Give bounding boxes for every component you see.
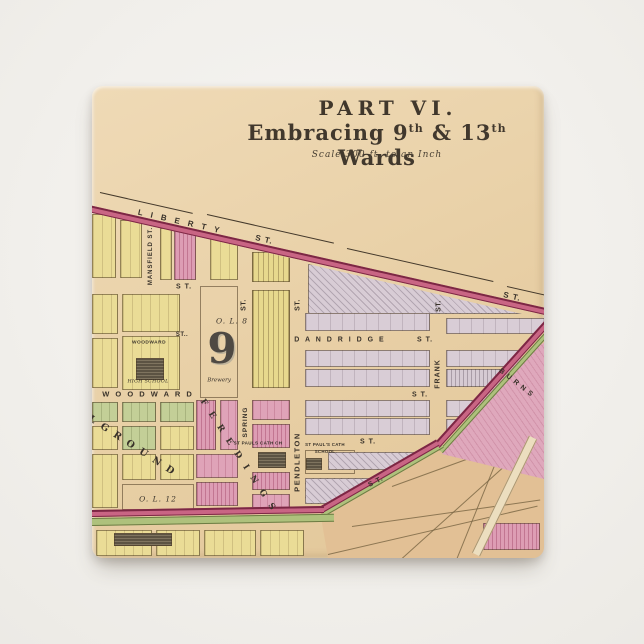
outlot-label-12: O. L. 12 [139,495,177,503]
street-label-dandridge: D A N D R I D G E [294,337,385,344]
place-label-st-pauls-school-1: ST PAUL'S CATH [305,443,345,447]
place-label-fere-dings: F E R E D I N G S [198,398,278,514]
place-label-st-pauls-school-2: SCHOOL [315,450,336,454]
street-label-st-right: S T. [412,392,428,399]
place-label-st-pauls-church: ST PAULS CATH CH [234,442,283,447]
street-label-st-left: S T. [176,284,192,291]
street-label-dandridge-st: S T. [417,337,433,344]
ward-number: 9 [207,328,236,370]
place-label-burns: B U R N S [497,367,534,398]
place-label-woodward-school-2: HIGH SCHOOL [127,381,168,386]
street-label-st-v1: ST. [241,299,248,311]
map-print: PART VI. Embracing 9th & 13th Wards Scal… [92,86,544,558]
street-label-frank: FRANK [435,359,442,389]
place-label-brewery: Brewery [207,378,231,384]
street-label-frank-st-part: ST. [436,300,443,312]
street-label-st-v2: ST. [295,299,302,311]
street-label-mansfield: MANSFIELD ST. [148,227,154,285]
street-label-st-diagonal: S T. [367,475,384,489]
street-label-pendleton: PENDLETON [293,432,301,492]
place-label-woodward-school-1: WOODWARD [132,342,166,347]
street-label-woodward: W O O D W A R D [102,390,194,398]
street-label-st-mid: S T. [360,439,376,446]
map-labels-layer: L I B E R T YS T.S T.MANSFIELD ST.S T.ST… [92,86,544,558]
street-label-spring: SPRING [243,407,250,438]
street-label-st-small: ST.. [176,332,188,338]
street-label-liberty-st: S T. [254,234,273,246]
place-label-burial-ground: L G R O U N D [92,414,177,478]
street-label-liberty-st-2: S T. [502,291,521,303]
pin-button: PART VI. Embracing 9th & 13th Wards Scal… [92,86,544,558]
